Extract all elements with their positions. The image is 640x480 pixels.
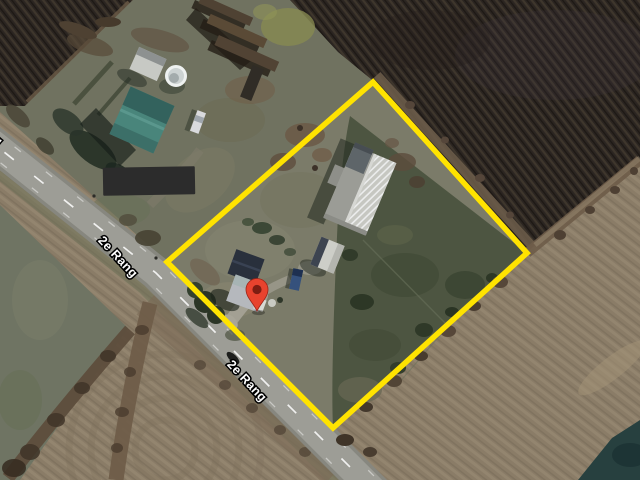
redaction-box: [103, 166, 195, 196]
aerial-map-image[interactable]: 2e Rang 2e Rang ng: [0, 0, 640, 480]
satellite-canvas: 2e Rang 2e Rang ng: [0, 0, 640, 480]
